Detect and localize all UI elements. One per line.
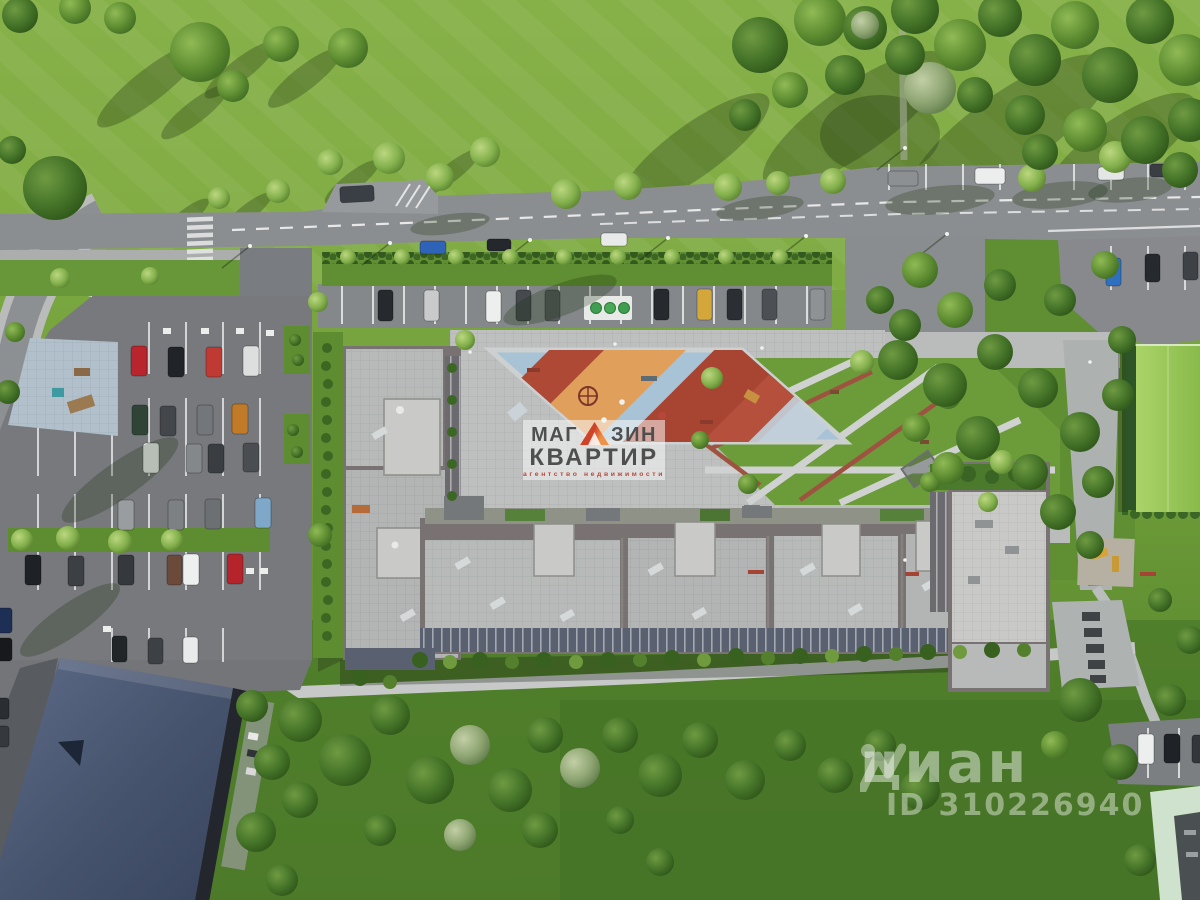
car: [232, 404, 248, 434]
stair-tower: [534, 524, 574, 576]
agency-name-left: МАГ: [531, 425, 578, 445]
car: [183, 554, 199, 585]
car: [68, 556, 84, 586]
car: [601, 233, 627, 246]
car: [1183, 252, 1198, 280]
roof-triangle-inner: [588, 432, 601, 445]
watermark-agency: МАГ ЗИН КВАРТИР агентство недвижимости: [523, 420, 665, 480]
car: [206, 347, 222, 377]
car: [727, 289, 742, 320]
car: [112, 636, 127, 662]
parking-island: [284, 326, 310, 374]
satellite-dish: [396, 406, 404, 414]
car: [132, 405, 148, 435]
car: [118, 555, 134, 585]
car: [197, 405, 213, 435]
green-roof-building: [1118, 344, 1200, 512]
car: [168, 347, 184, 377]
agency-name-line2: КВАРТИР: [529, 446, 658, 469]
car: [1145, 254, 1160, 282]
car: [888, 171, 918, 186]
agency-name-right: ЗИН: [611, 425, 657, 445]
cian-person-icon: [860, 742, 906, 792]
van: [340, 185, 375, 203]
satellite-dish: [392, 542, 399, 549]
car: [486, 291, 501, 322]
play-structure: [52, 388, 64, 397]
stair-tower: [384, 399, 440, 475]
agency-name-line1: МАГ ЗИН: [531, 422, 657, 445]
stair-tower: [822, 524, 860, 576]
parking-entrance: [240, 248, 312, 300]
car: [810, 289, 825, 320]
car: [167, 555, 182, 585]
car: [243, 346, 259, 376]
car: [697, 289, 712, 320]
bus-bay: [322, 180, 438, 214]
car: [148, 638, 163, 664]
car: [762, 289, 777, 320]
car: [0, 608, 12, 633]
car: [654, 289, 669, 320]
car: [424, 290, 439, 321]
van: [975, 168, 1005, 184]
car: [168, 500, 184, 530]
car: [160, 406, 176, 436]
car: [0, 638, 12, 661]
car: [186, 444, 202, 473]
watermark-cian: циан ID 310226940: [860, 738, 1144, 822]
car: [378, 290, 393, 321]
car: [1192, 735, 1200, 763]
car: [183, 637, 198, 663]
car: [208, 444, 224, 473]
car: [131, 346, 147, 376]
car: [243, 443, 259, 472]
car: [205, 499, 221, 529]
listing-id: ID 310226940: [886, 790, 1144, 822]
car: [118, 500, 134, 530]
car: [227, 554, 243, 584]
car: [420, 241, 446, 254]
car: [1164, 734, 1180, 763]
aerial-render: МАГ ЗИН КВАРТИР агентство недвижимости ц…: [0, 0, 1200, 900]
car: [255, 498, 271, 528]
stair-tower: [675, 522, 715, 576]
car: [25, 555, 41, 585]
agency-tagline: агентство недвижимости: [523, 471, 665, 478]
car: [0, 698, 9, 719]
car: [487, 239, 511, 251]
roof-triangle-icon: [580, 422, 609, 445]
roadside-green: [0, 260, 240, 296]
yellow-play-structure: [1112, 556, 1119, 572]
parking-median-green: [8, 528, 270, 552]
play-structure: [74, 368, 90, 376]
car: [0, 726, 9, 747]
